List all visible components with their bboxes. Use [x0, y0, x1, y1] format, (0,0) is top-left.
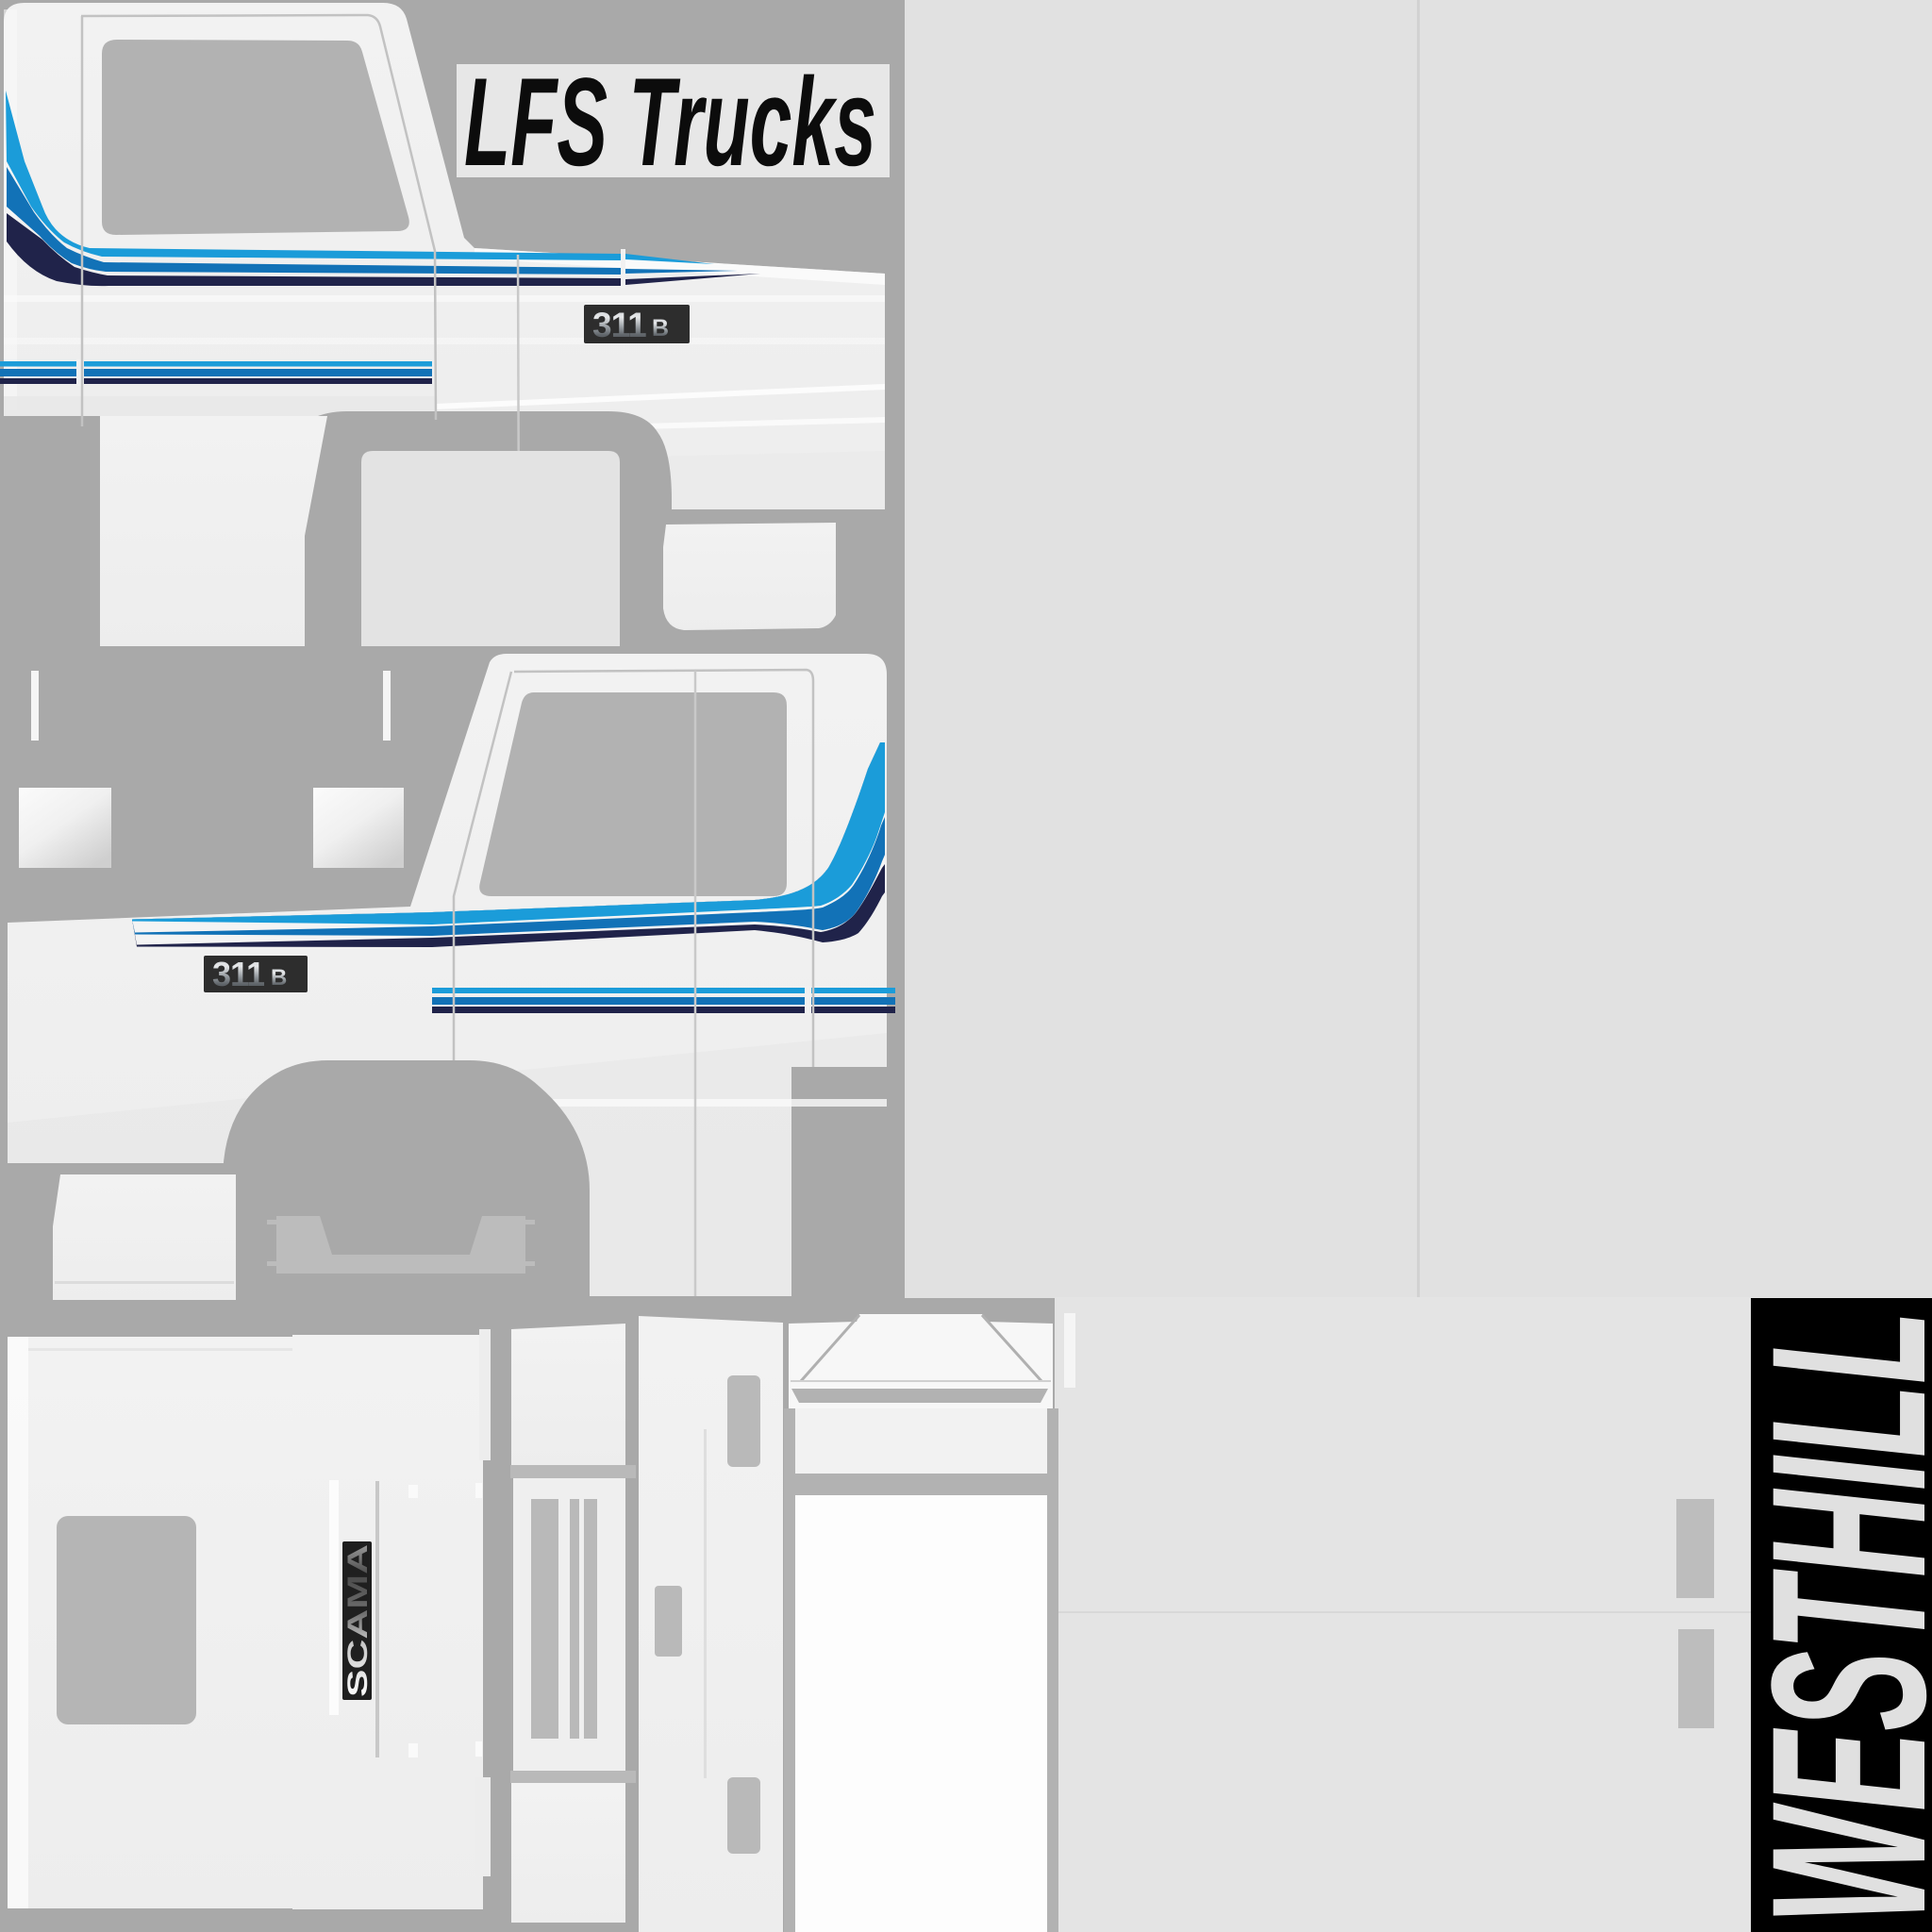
svg-text:B: B — [271, 965, 287, 991]
svg-text:B: B — [652, 315, 669, 341]
svg-text:311: 311 — [212, 955, 265, 993]
svg-text:L: L — [1725, 1310, 1932, 1384]
svg-text:H: H — [1725, 1489, 1932, 1577]
svg-text:LFS Trucks: LFS Trucks — [464, 53, 876, 192]
svg-text:S: S — [1725, 1651, 1932, 1731]
svg-text:E: E — [1725, 1728, 1932, 1811]
svg-text:T: T — [1725, 1569, 1932, 1651]
svg-text:L: L — [1725, 1384, 1932, 1457]
svg-text:311: 311 — [592, 306, 646, 344]
svg-text:W: W — [1725, 1802, 1932, 1924]
svg-text:I: I — [1725, 1455, 1932, 1491]
svg-text:SCAMA: SCAMA — [342, 1544, 374, 1697]
